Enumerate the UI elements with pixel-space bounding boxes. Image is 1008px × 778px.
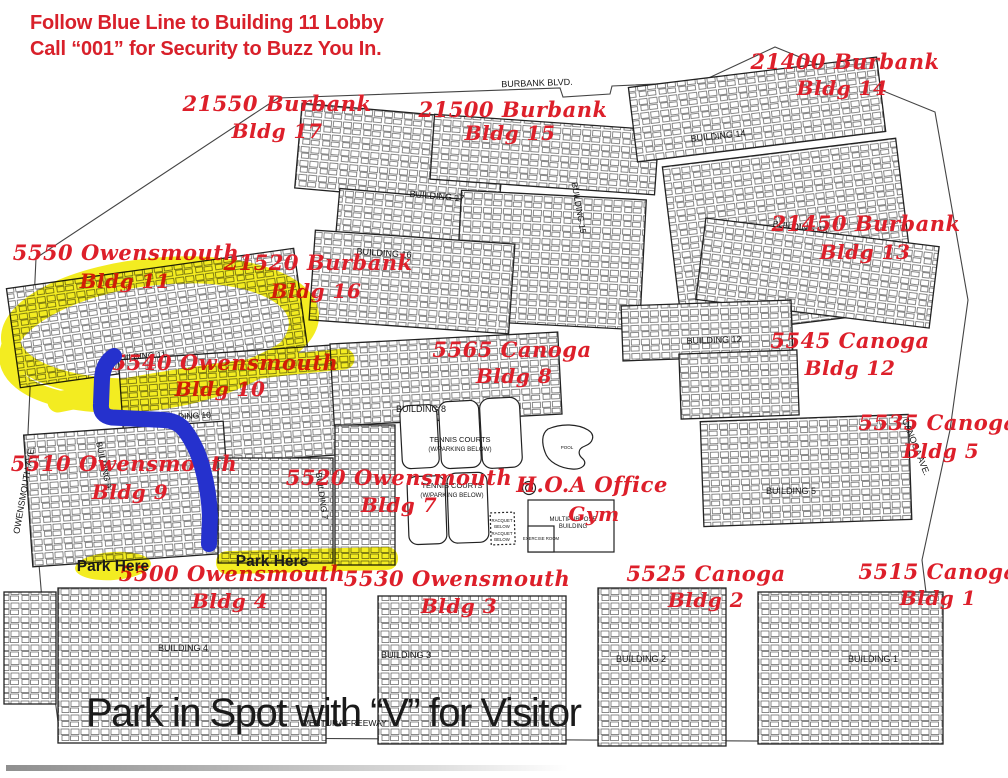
label-21500-burbank-bldg: Bldg 15 (464, 121, 556, 145)
map-label-building-1: BUILDING 1 (848, 654, 898, 664)
label-5520-owensmouth: 5520 Owensmouth (286, 465, 513, 490)
label-5525-canoga: 5525 Canoga (626, 561, 785, 586)
label-5515-canoga: 5515 Canoga (858, 559, 1008, 584)
tennis-court-upper-3 (479, 397, 523, 469)
map-label-building-2: BUILDING 2 (616, 654, 666, 664)
label-5535-canoga-bldg: Bldg 5 (902, 439, 979, 463)
racquet-label-4: BELOW (494, 537, 510, 542)
racquet-label-1: RACQUET (491, 518, 512, 523)
label-5565-canoga: 5565 Canoga (432, 337, 591, 362)
label-21450-burbank: 21450 Burbank (770, 211, 960, 236)
visitor-instructions: Follow Blue Line to Building 11 Lobby Ca… (30, 10, 384, 62)
label-21500-burbank: 21500 Burbank (417, 97, 607, 122)
map-label-building-3: BUILDING 3 (381, 650, 431, 660)
label-21550-burbank-bldg: Bldg 17 (231, 119, 323, 143)
label-5545-canoga: 5545 Canoga (770, 328, 929, 353)
scan-artifact-bar (6, 765, 568, 771)
map-label-building-5: BUILDING 5 (766, 486, 816, 496)
label-5525-canoga-bldg: Bldg 2 (667, 588, 744, 612)
label-5535-canoga: 5535 Canoga (858, 410, 1008, 435)
tennis-upper-label-2: (W/PARKING BELOW) (428, 446, 491, 453)
racquet-label-3: RACQUET (491, 531, 512, 536)
instruction-line-1: Follow Blue Line to Building 11 Lobby (30, 10, 384, 36)
label-5545-canoga-bldg: Bldg 12 (804, 356, 896, 380)
site-map-page: BUILDING 17 BUILDING 15 BUILDING 14 BUIL… (0, 0, 1008, 778)
label-21450-burbank-bldg: Bldg 13 (819, 240, 911, 264)
label-21400-burbank: 21400 Burbank (749, 49, 939, 74)
park-here-right-label: Park Here (236, 553, 309, 570)
building-12-footprint-lower (679, 350, 799, 419)
visitor-parking-note: Park in Spot with “V” for Visitor (86, 691, 580, 736)
street-label-burbank: BURBANK BLVD. (501, 77, 573, 89)
complex-site-map: BUILDING 17 BUILDING 15 BUILDING 14 BUIL… (0, 0, 1008, 778)
exercise-room-label: EXERCISE ROOM (523, 536, 560, 541)
map-label-building-4: BUILDING 4 (158, 643, 208, 653)
pool-label: POOL (561, 445, 574, 450)
racquet-label-2: BELOW (494, 524, 510, 529)
label-21550-burbank: 21550 Burbank (181, 91, 371, 116)
park-here-left-label: Park Here (77, 558, 150, 575)
map-label-building-8: BUILDING 8 (396, 404, 446, 414)
label-5520-owensmouth-bldg: Bldg 7 (360, 493, 437, 517)
label-5500-owensmouth-bldg: Bldg 4 (191, 589, 268, 613)
building-1-footprint (758, 592, 943, 744)
label-21400-burbank-bldg: Bldg 14 (796, 76, 888, 100)
label-5515-canoga-bldg: Bldg 1 (899, 586, 976, 610)
building-4-footprint-west (4, 592, 56, 704)
label-hoa-office: H.O.A Office (515, 472, 668, 497)
map-label-building-12: BUILDING 12 (686, 334, 741, 346)
label-5510-owensmouth-bldg: Bldg 9 (91, 480, 168, 504)
label-5530-owensmouth-bldg: Bldg 3 (420, 594, 497, 618)
instruction-line-2: Call “001” for Security to Buzz You In. (30, 36, 384, 62)
label-hoa-office-gym: Gym (568, 502, 619, 526)
tennis-upper-label-1: TENNIS COURTS (429, 435, 490, 444)
label-5565-canoga-bldg: Bldg 8 (475, 364, 552, 388)
